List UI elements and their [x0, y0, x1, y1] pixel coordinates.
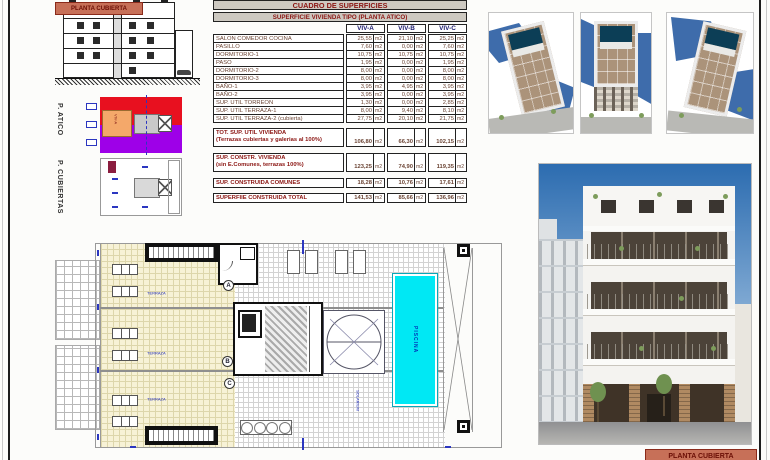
terrace-label: TERRAZA — [147, 352, 166, 356]
summary-row-constr: SUP. CONSTR. VIVIENDA(sin E.Comunes, ter… — [213, 153, 467, 172]
cell-value: 25,25 — [429, 35, 455, 42]
elevation-window — [93, 22, 100, 29]
table-row: SUP. UTIL TERRAZA-2 (cubierta) 27,75m2 2… — [213, 114, 467, 123]
dimension-tick — [130, 446, 136, 448]
atico-terrace-level — [583, 186, 735, 231]
cell-value: 3,95 — [347, 83, 373, 90]
atico-core — [134, 114, 160, 134]
unit-label: m2 — [414, 154, 425, 171]
plan-sheet-page: PLANTA CUBIERTA PLANTA CUBIERTA P. ATICO… — [0, 0, 770, 460]
sunbed — [287, 250, 300, 274]
cell-value: 123,25 — [347, 154, 373, 171]
unit-label: m2 — [414, 75, 425, 82]
annotation-mark — [112, 206, 118, 208]
unit-label: m2 — [414, 83, 425, 90]
elevation-window — [129, 52, 136, 59]
neighbor-building-right — [733, 304, 752, 426]
page-border-left — [8, 0, 10, 460]
unit-label: m2 — [373, 91, 384, 98]
cell-value: 27,75 — [347, 115, 373, 122]
atico-section-line — [146, 95, 147, 155]
cell-value: 7,60 — [347, 43, 373, 50]
section-marker-b: B — [222, 356, 233, 367]
aerial-renders-strip — [488, 12, 756, 136]
pergola-grid — [55, 345, 100, 430]
column-marker — [457, 244, 470, 257]
cell-value: 8,00 — [347, 75, 373, 82]
table-title: CUADRO DE SUPERFICIES — [213, 0, 467, 10]
cell-value: 0,00 — [388, 75, 414, 82]
cell-value: 136,96 — [429, 194, 455, 202]
unit-label: m2 — [373, 179, 384, 187]
cell-value: 1,30 — [347, 99, 373, 106]
unit-label: m2 — [373, 51, 384, 58]
cell-value: 66,30 — [388, 129, 414, 146]
unit-label: m2 — [455, 83, 466, 90]
elevation-window — [129, 37, 136, 44]
elevation-window — [129, 22, 136, 29]
swimming-pool: PISCINA — [392, 273, 438, 407]
aerial-render-1 — [488, 12, 574, 134]
cell-value: 10,75 — [388, 51, 414, 58]
torreon-rooms — [218, 243, 258, 285]
cell-value: 20,10 — [388, 115, 414, 122]
cell-value: 74,90 — [388, 154, 414, 171]
stair-core — [233, 302, 323, 376]
page-border-right-outer — [766, 0, 767, 460]
unit-label: m2 — [414, 107, 425, 114]
cell-value: 9,40 — [388, 107, 414, 114]
elevation-window — [93, 37, 100, 44]
planter-row — [240, 420, 292, 435]
terrace-label: TERRAZA — [147, 398, 166, 402]
cell-value: 0,00 — [388, 59, 414, 66]
aerial-render-2 — [580, 12, 652, 134]
unit-label: m2 — [373, 67, 384, 74]
pergola-grid — [55, 260, 100, 340]
table-furniture — [112, 264, 138, 275]
tree — [663, 396, 665, 416]
column-header-viv-b: VIV-B — [387, 24, 426, 33]
dimension-tick — [97, 250, 99, 256]
dimension-tick-box — [86, 139, 97, 146]
roof-floor-plan: PISCINA A B C TERRAZA TERRAZA TERRAZA SO… — [55, 240, 505, 452]
unit-label: m2 — [373, 154, 384, 171]
cell-value: 3,95 — [429, 83, 455, 90]
elevation-window — [129, 67, 136, 74]
unit-label: m2 — [373, 59, 384, 66]
unit-label: m2 — [455, 179, 466, 187]
elevation-window — [77, 52, 84, 59]
pool-label: PISCINA — [412, 326, 418, 353]
cell-value: 1,95 — [347, 59, 373, 66]
cell-value: 17,61 — [429, 179, 455, 187]
unit-label: m2 — [414, 129, 425, 146]
unit-label: m2 — [414, 67, 425, 74]
cell-value: 3,95 — [347, 91, 373, 98]
atico-viv-a-label: VIV-A — [113, 114, 117, 124]
stairs-top — [145, 243, 218, 262]
unit-label: m2 — [455, 194, 466, 202]
unit-label: m2 — [373, 129, 384, 146]
table-subtitle: SUPERFICIE VIVIENDA TIPO (PLANTA ATICO) — [213, 12, 467, 22]
stairs-bottom — [145, 426, 218, 445]
table-header-row: VIV-A VIV-B VIV-C — [213, 24, 467, 33]
cell-value: 2,85 — [429, 99, 455, 106]
elevation-ground-hatch — [55, 78, 200, 85]
cell-value: 85,66 — [388, 194, 414, 202]
cell-value: 0,00 — [388, 91, 414, 98]
sunbed — [353, 250, 366, 274]
street — [539, 422, 752, 445]
elevation-floor-line — [63, 63, 175, 64]
elevation-window — [77, 22, 84, 29]
dimension-tick-box — [86, 121, 97, 128]
cell-value: 21,10 — [388, 35, 414, 42]
solarium-label: SOLARIUM — [355, 390, 359, 411]
aerial-render-3 — [666, 12, 754, 134]
cell-value: 0,00 — [388, 67, 414, 74]
unit-label: m2 — [414, 99, 425, 106]
unit-label: m2 — [455, 67, 466, 74]
table-furniture — [112, 328, 138, 339]
elevation-floor-line — [63, 48, 175, 49]
section-line — [302, 240, 304, 254]
unit-label: m2 — [414, 59, 425, 66]
unit-label: m2 — [373, 83, 384, 90]
atico-zone-viv-a: VIV-A — [102, 110, 132, 137]
elevation-window — [77, 37, 84, 44]
elevation-floor-line — [63, 18, 175, 19]
facade-render — [538, 163, 752, 445]
cell-value: 3,95 — [429, 91, 455, 98]
annotation-mark — [142, 166, 148, 168]
page-border-right — [759, 0, 761, 460]
cell-value: 10,75 — [347, 51, 373, 58]
unit-label: m2 — [455, 35, 466, 42]
dimension-tick-box — [86, 103, 97, 110]
elevation-window — [93, 52, 100, 59]
elevation-car — [177, 70, 191, 75]
unit-label: m2 — [455, 91, 466, 98]
atico-plan-title: P. ATICO — [56, 103, 63, 136]
annotation-mark — [142, 206, 148, 208]
annotation-mark — [112, 178, 118, 180]
cell-value: 4,95 — [388, 83, 414, 90]
cell-value: 119,35 — [429, 154, 455, 171]
unit-label: m2 — [455, 99, 466, 106]
cell-value: 10,76 — [388, 179, 414, 187]
summary-label: SUPERFIIE CONSTRUIDA TOTAL — [213, 193, 344, 203]
unit-label: m2 — [373, 43, 384, 50]
planta-cubierta-label-top: PLANTA CUBIERTA — [55, 2, 143, 15]
section-marker-a: A — [223, 280, 234, 291]
table-furniture — [112, 286, 138, 297]
summary-row-comunes: SUP. CONSTRUIDA COMUNES 18,28m2 10,76m2 … — [213, 178, 467, 188]
planta-cubierta-label-bottom: PLANTA CUBIERTA — [645, 449, 757, 460]
table-furniture — [112, 395, 138, 406]
skylight-circles — [323, 310, 385, 374]
surfaces-table: CUADRO DE SUPERFICIES SUPERFICIE VIVIEND… — [213, 0, 467, 203]
unit-label: m2 — [414, 194, 425, 202]
cell-value: 8,00 — [429, 67, 455, 74]
summary-sublabel: (Terrazas cubiertas y galerias al 100%) — [216, 137, 343, 144]
cubiertas-plan-title: P. CUBIERTAS — [56, 160, 63, 214]
table-furniture — [112, 350, 138, 361]
annotation-mark — [112, 192, 118, 194]
elevation-window — [147, 52, 154, 59]
unit-label: m2 — [414, 51, 425, 58]
cell-value: 8,00 — [347, 67, 373, 74]
sunbed — [335, 250, 348, 274]
unit-label: m2 — [455, 43, 466, 50]
unit-label: m2 — [373, 115, 384, 122]
unit-label: m2 — [455, 107, 466, 114]
balcony-level — [583, 232, 735, 276]
summary-sublabel: (sin E.Comunes, terrazas 100%) — [216, 162, 343, 169]
cubiertas-key-plan: P. CUBIERTAS — [50, 156, 185, 220]
section-line — [302, 438, 304, 450]
section-marker-c: C — [224, 378, 235, 389]
elevation-window — [147, 37, 154, 44]
cell-value: 10,75 — [429, 51, 455, 58]
summary-row-total: SUPERFIIE CONSTRUIDA TOTAL 141,53m2 85,6… — [213, 193, 467, 203]
tree — [656, 374, 672, 394]
column-header-viv-c: VIV-C — [428, 24, 467, 33]
row-label: SUP. UTIL TERRAZA-2 (cubierta) — [213, 114, 344, 123]
summary-label: TOT. SUP. UTIL VIVIENDA — [216, 130, 343, 137]
unit-label: m2 — [455, 51, 466, 58]
elevation-window — [147, 22, 154, 29]
glass-roof-x — [443, 248, 473, 432]
cell-value: 8,10 — [429, 107, 455, 114]
unit-label: m2 — [373, 99, 384, 106]
cell-value: 102,15 — [429, 129, 455, 146]
cubiertas-right-bay — [168, 160, 180, 214]
summary-row-util: TOT. SUP. UTIL VIVIENDA(Terrazas cubiert… — [213, 128, 467, 147]
unit-label: m2 — [455, 154, 466, 171]
dimension-tick — [97, 304, 99, 310]
column-marker — [457, 420, 470, 433]
column-header-viv-a: VIV-A — [346, 24, 385, 33]
summary-label: SUP. CONSTRUIDA COMUNES — [213, 178, 344, 188]
unit-label: m2 — [455, 59, 466, 66]
dimension-tick — [97, 367, 99, 373]
cell-value: 8,00 — [429, 75, 455, 82]
sunbed — [305, 250, 318, 274]
terrace-label: TERRAZA — [147, 292, 166, 296]
dimension-tick — [445, 446, 451, 448]
cell-value: 106,80 — [347, 129, 373, 146]
cubiertas-torreon — [108, 161, 116, 173]
unit-label: m2 — [373, 75, 384, 82]
cubiertas-core — [134, 178, 160, 198]
cell-value: 1,95 — [429, 59, 455, 66]
cell-value: 21,75 — [429, 115, 455, 122]
page-border-left-outer — [2, 0, 3, 460]
elevation-floor-line — [63, 33, 175, 34]
unit-label: m2 — [373, 107, 384, 114]
unit-label: m2 — [414, 115, 425, 122]
cell-value: 141,53 — [347, 194, 373, 202]
unit-label: m2 — [414, 35, 425, 42]
cell-value: 0,00 — [388, 99, 414, 106]
tree — [597, 402, 599, 422]
balcony-level — [583, 282, 735, 326]
cell-value: 8,00 — [347, 107, 373, 114]
cell-value: 25,55 — [347, 35, 373, 42]
cell-value: 18,28 — [347, 179, 373, 187]
elevation-parapet — [161, 0, 168, 2]
table-furniture — [112, 416, 138, 427]
unit-label: m2 — [455, 115, 466, 122]
cell-value: 0,00 — [388, 43, 414, 50]
unit-label: m2 — [373, 35, 384, 42]
summary-label: SUP. CONSTR. VIVIENDA — [216, 155, 343, 162]
elevator-shaft — [242, 314, 256, 332]
unit-label: m2 — [455, 75, 466, 82]
balcony-level — [583, 332, 735, 376]
cell-value: 7,60 — [429, 43, 455, 50]
unit-label: m2 — [414, 43, 425, 50]
neighbor-building-left — [539, 239, 585, 445]
tree — [590, 382, 606, 402]
atico-key-plan: P. ATICO VIV-A — [50, 95, 185, 157]
unit-label: m2 — [455, 129, 466, 146]
unit-label: m2 — [373, 194, 384, 202]
dimension-tick — [97, 434, 99, 440]
unit-label: m2 — [414, 91, 425, 98]
atico-elevator-icon — [158, 115, 172, 132]
unit-label: m2 — [414, 179, 425, 187]
